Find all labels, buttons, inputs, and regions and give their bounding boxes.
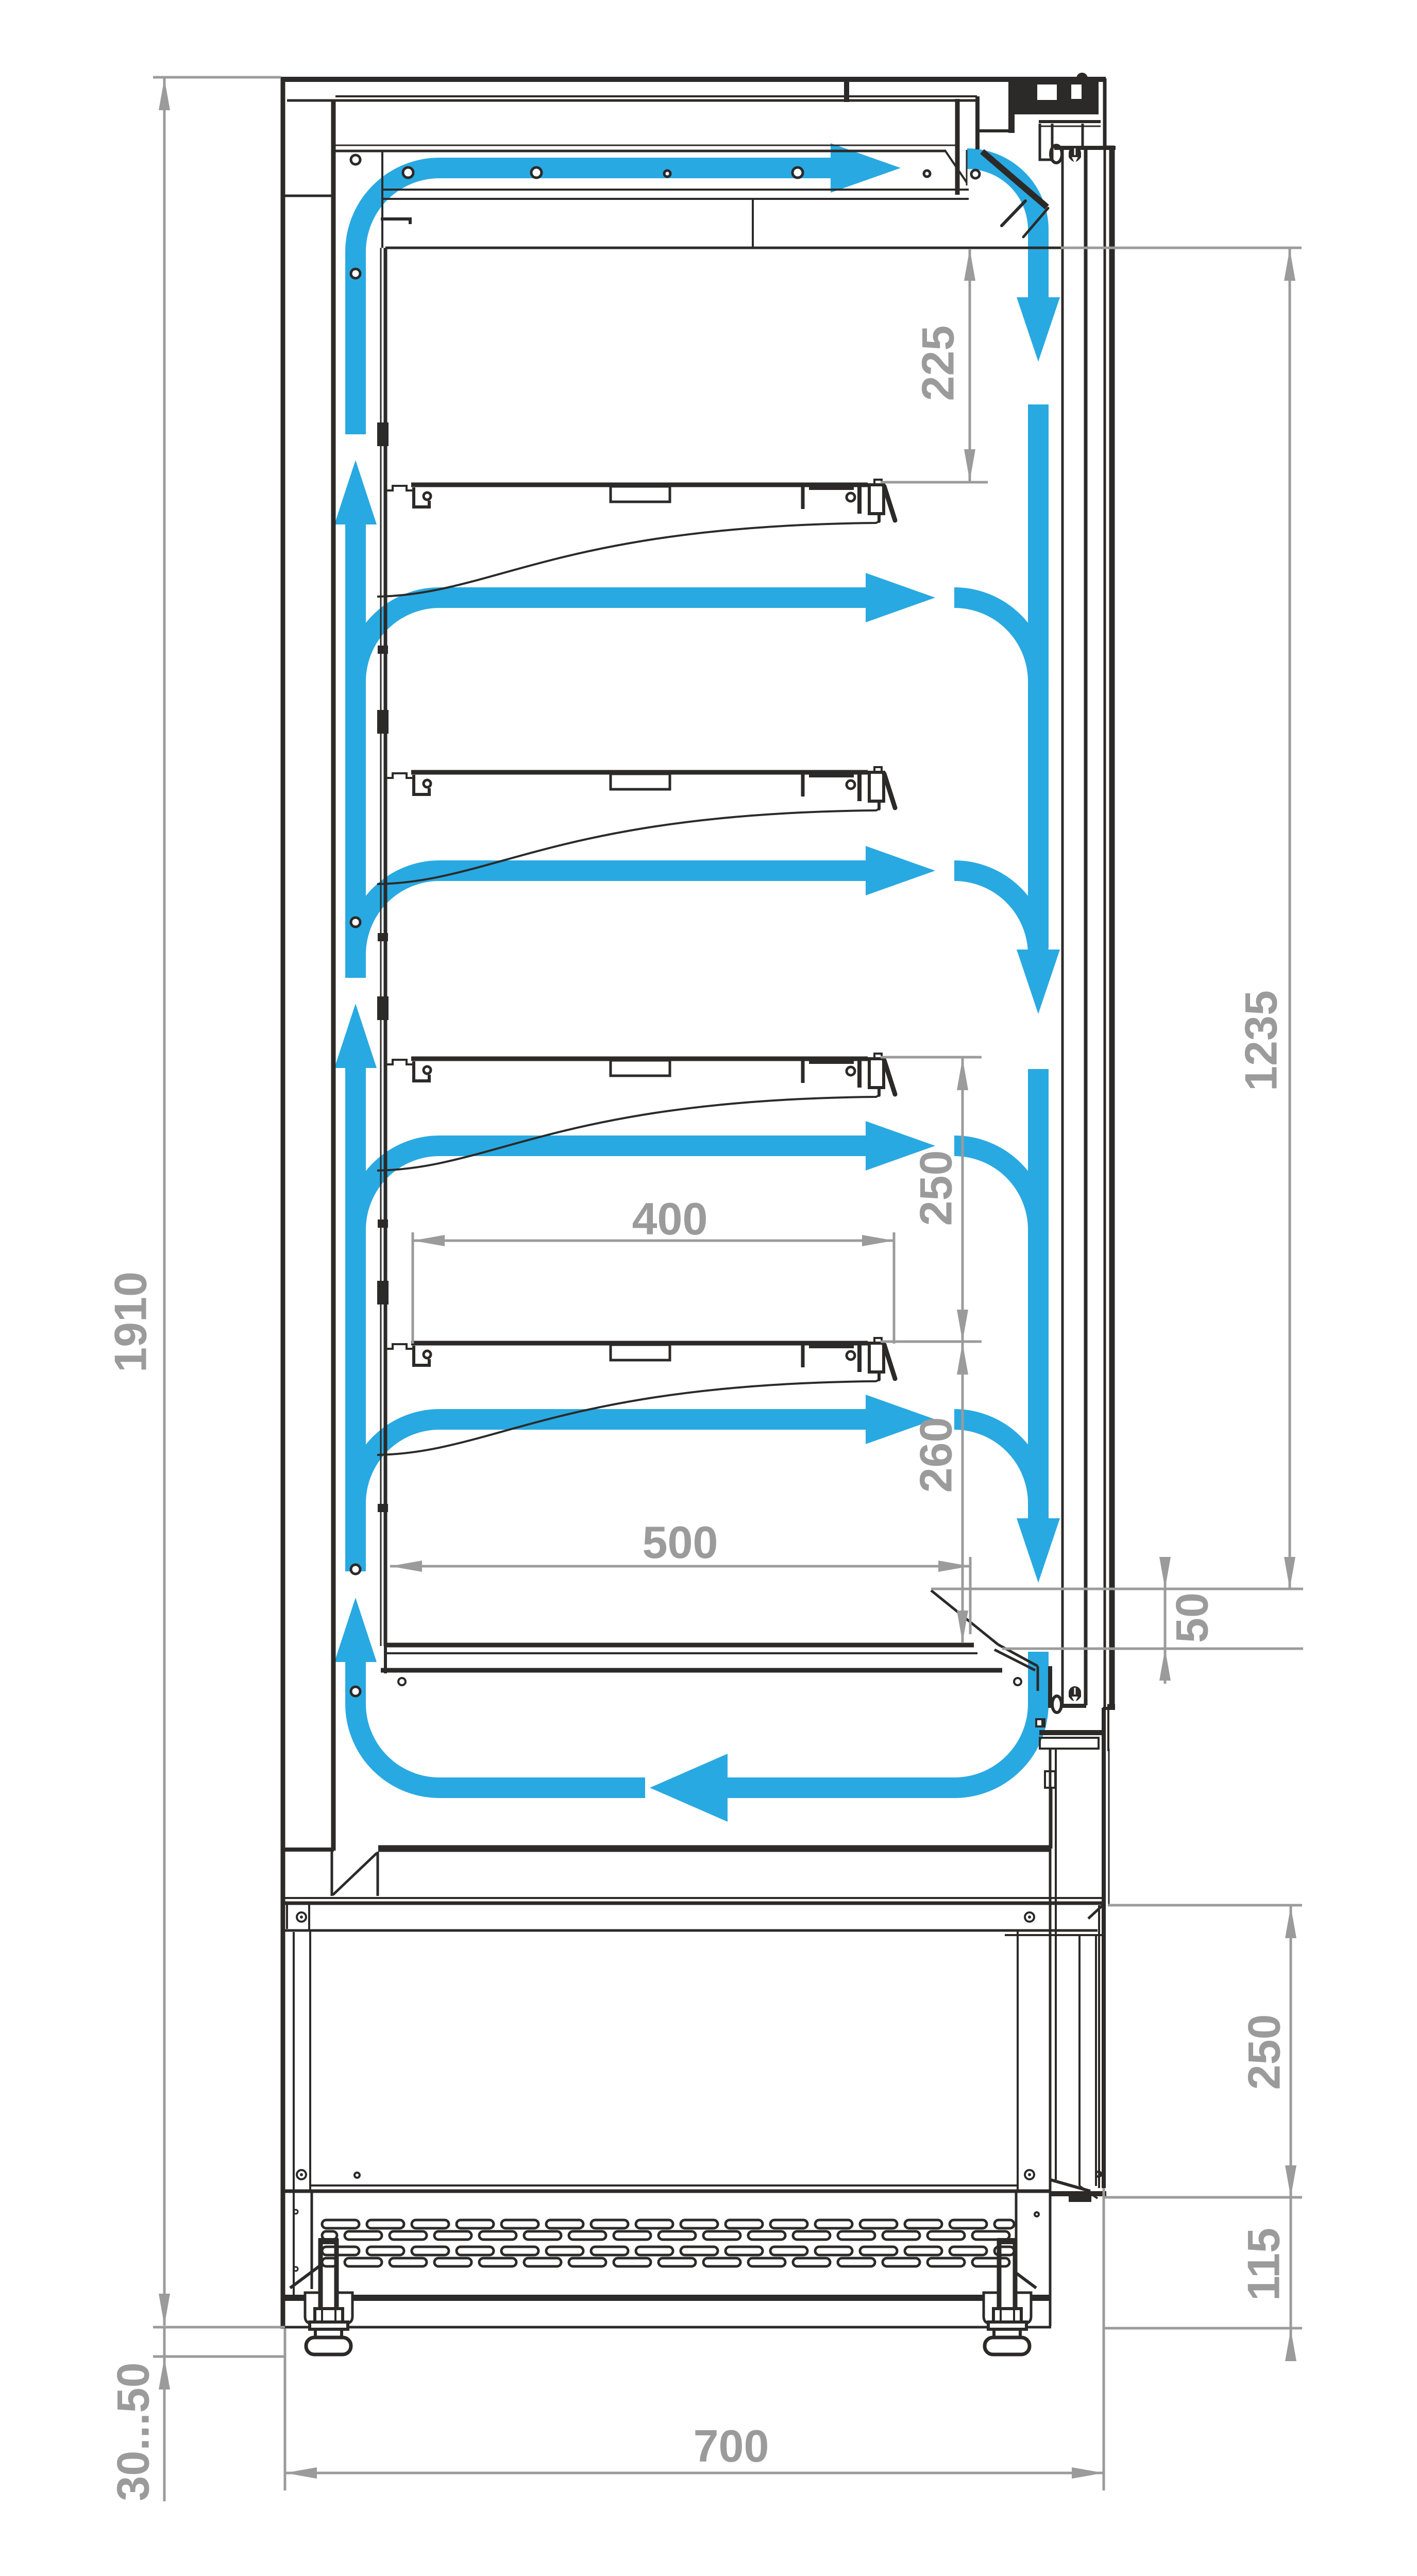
- svg-text:260: 260: [910, 1417, 961, 1493]
- svg-text:225: 225: [913, 326, 964, 401]
- svg-text:50: 50: [1167, 1592, 1218, 1643]
- svg-text:400: 400: [632, 1193, 708, 1244]
- svg-text:30...50: 30...50: [108, 2362, 159, 2501]
- svg-text:1910: 1910: [105, 1272, 156, 1372]
- svg-text:250: 250: [1239, 2014, 1290, 2090]
- svg-text:500: 500: [643, 1517, 718, 1568]
- svg-text:700: 700: [694, 2420, 769, 2471]
- svg-text:250: 250: [910, 1150, 961, 1226]
- svg-text:115: 115: [1238, 2228, 1289, 2301]
- svg-text:1235: 1235: [1236, 990, 1287, 1091]
